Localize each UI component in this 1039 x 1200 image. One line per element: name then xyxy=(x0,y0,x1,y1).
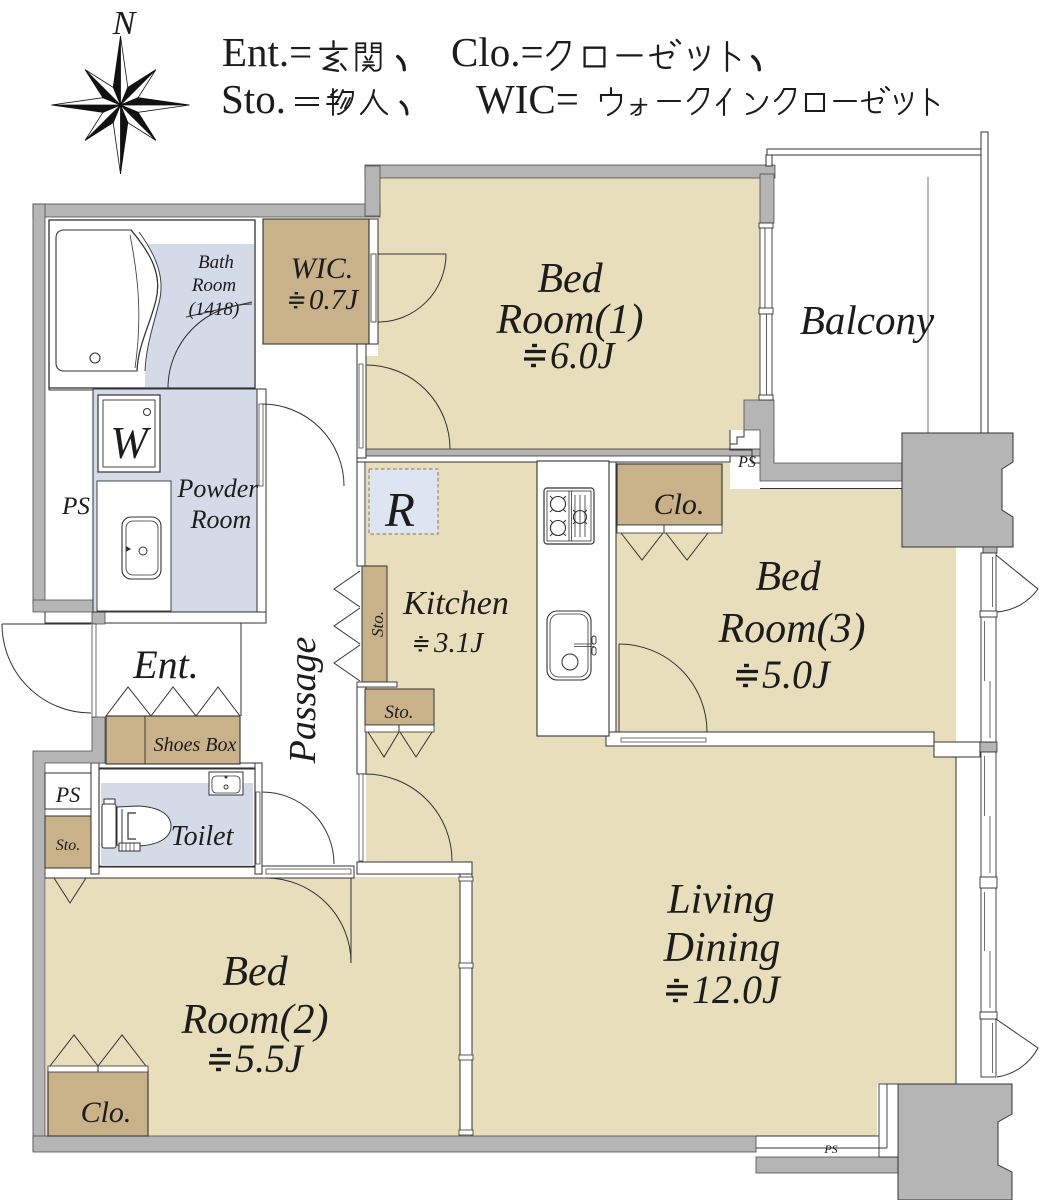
svg-text:Clo.=: Clo.= xyxy=(451,29,544,75)
svg-text:W: W xyxy=(110,418,151,468)
svg-text:WIC.: WIC. xyxy=(291,252,354,285)
svg-text:Bed: Bed xyxy=(222,949,288,995)
svg-text:N: N xyxy=(112,5,138,42)
svg-text:Sto.: Sto. xyxy=(56,837,80,854)
svg-text:PS: PS xyxy=(737,454,756,471)
svg-text:0.7J: 0.7J xyxy=(309,284,359,316)
svg-text:Room: Room xyxy=(190,505,252,534)
svg-text:6.0J: 6.0J xyxy=(550,335,617,377)
svg-text:Shoes Box: Shoes Box xyxy=(154,734,237,756)
svg-text:Room(3): Room(3) xyxy=(718,606,866,652)
svg-text:Bath: Bath xyxy=(198,252,234,273)
svg-text:3.1J: 3.1J xyxy=(433,627,484,659)
svg-text:(1418): (1418) xyxy=(189,299,240,320)
svg-text:Sto.: Sto. xyxy=(384,702,413,723)
svg-text:PS: PS xyxy=(55,782,80,807)
svg-text:5.0J: 5.0J xyxy=(762,652,832,697)
svg-text:5.5J: 5.5J xyxy=(235,1036,305,1081)
svg-text:Clo.: Clo. xyxy=(654,488,705,521)
svg-text:Ent.: Ent. xyxy=(132,642,199,687)
svg-text:WIC=: WIC= xyxy=(476,76,579,122)
svg-text:12.0J: 12.0J xyxy=(692,967,782,1012)
svg-text:Room: Room xyxy=(191,275,236,296)
svg-text:Dining: Dining xyxy=(663,925,781,971)
svg-text:Toilet: Toilet xyxy=(171,821,235,852)
svg-text:Living: Living xyxy=(666,877,774,923)
svg-text:Sto.: Sto. xyxy=(368,611,387,637)
svg-text:Powder: Powder xyxy=(177,474,260,503)
svg-text:Clo.: Clo. xyxy=(81,1096,132,1129)
svg-text:PS: PS xyxy=(61,493,90,520)
svg-text:Ent.=: Ent.= xyxy=(222,29,312,75)
svg-text:Balcony: Balcony xyxy=(800,297,935,343)
svg-text:Bed: Bed xyxy=(537,256,603,302)
svg-text:Passage: Passage xyxy=(282,637,324,765)
svg-text:R: R xyxy=(384,482,415,537)
svg-text:Bed: Bed xyxy=(755,554,821,600)
svg-text:Kitchen: Kitchen xyxy=(402,585,509,622)
svg-text:PS: PS xyxy=(823,1142,837,1156)
svg-text:Sto.: Sto. xyxy=(221,76,286,122)
